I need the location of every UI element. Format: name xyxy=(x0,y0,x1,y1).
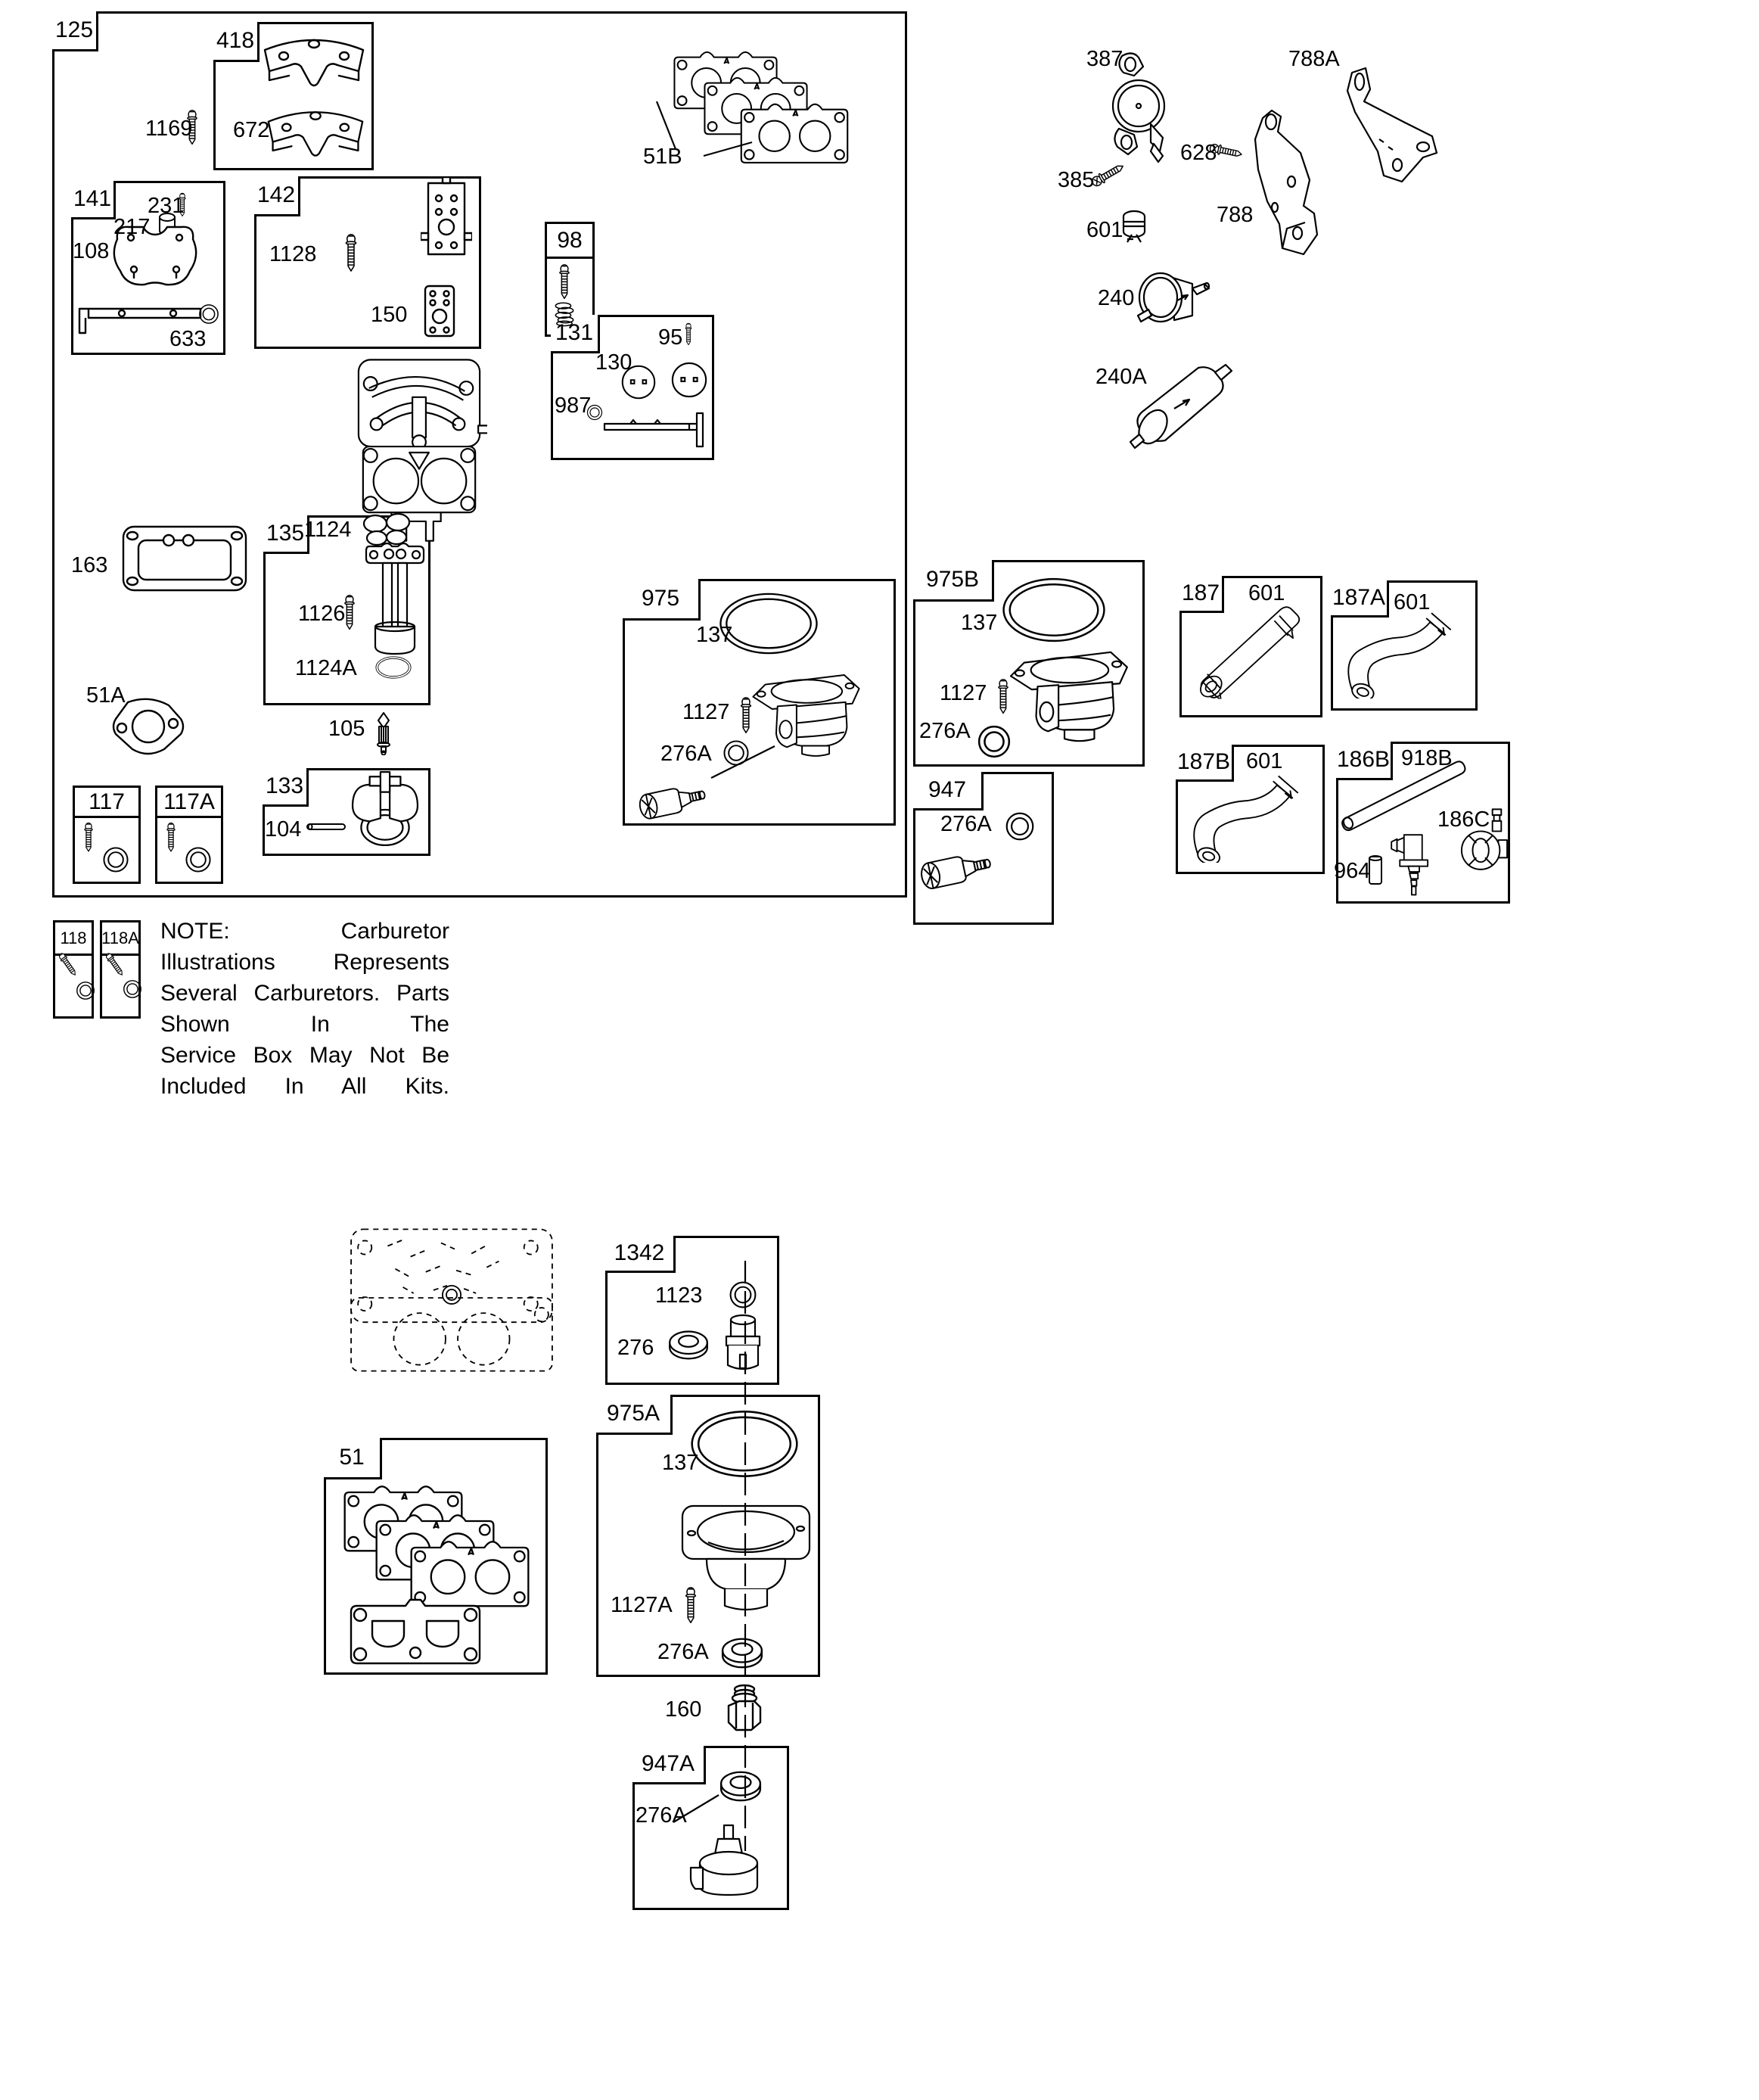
callout-1126: 1126 xyxy=(298,603,345,625)
kit-tag-125: 125 xyxy=(52,11,98,51)
callout-137: 137 xyxy=(662,1452,698,1474)
bracket-icon xyxy=(1330,67,1439,188)
callout-240A: 240A xyxy=(1095,366,1147,388)
callout-1124A: 1124A xyxy=(295,658,357,680)
plate-icon xyxy=(422,285,457,338)
callout-385: 385 xyxy=(1058,170,1094,191)
screw-icon xyxy=(57,950,79,979)
callout-51B: 51B xyxy=(643,146,682,168)
kit-tag-947: 947 xyxy=(913,772,984,810)
callout-1127: 1127 xyxy=(940,683,987,705)
nut-icon xyxy=(723,1683,766,1734)
seal-ring-icon xyxy=(76,981,95,1000)
callout-163: 163 xyxy=(71,555,107,577)
screw-icon xyxy=(161,822,181,854)
bracket-icon xyxy=(421,177,472,274)
callout-160: 160 xyxy=(665,1699,701,1721)
callout-672: 672 xyxy=(233,120,269,142)
callout-186C: 186C xyxy=(1437,809,1490,831)
callout-276A: 276A xyxy=(940,814,992,835)
screw-icon xyxy=(79,822,98,854)
callout-137: 137 xyxy=(961,612,997,634)
screw-icon xyxy=(994,678,1012,716)
callout-788: 788 xyxy=(1217,204,1253,226)
fuel-bowl-icon xyxy=(996,643,1135,749)
screw-icon xyxy=(555,263,573,301)
parts-diagram: 125 418 141 142 98 131 135 133 117 117A … xyxy=(0,0,1759,2100)
kit-tag-117A: 117A xyxy=(157,788,221,818)
callout-231: 231 xyxy=(148,195,184,217)
screw-icon xyxy=(682,1586,700,1626)
service-note-line1: NOTE: Carburetor Illustrations Represent… xyxy=(160,916,449,978)
seal-ring-icon xyxy=(977,719,1012,764)
fuel-filter-icon xyxy=(1133,260,1217,333)
callout-601: 601 xyxy=(1248,583,1285,605)
seal-ring-icon xyxy=(1005,804,1035,849)
kit-tag-975: 975 xyxy=(623,579,701,621)
kit-tag-142: 142 xyxy=(254,176,300,216)
washer-icon xyxy=(666,1327,711,1362)
callout-276: 276 xyxy=(617,1337,654,1359)
kit-tag-1342: 1342 xyxy=(605,1236,676,1273)
callout-276A: 276A xyxy=(919,720,971,742)
callout-276A: 276A xyxy=(657,1641,709,1663)
gasket-icon xyxy=(347,1595,484,1668)
heat-shield-icon xyxy=(260,100,371,166)
jet-cup-icon xyxy=(721,1312,765,1373)
spring-icon xyxy=(554,301,575,327)
callout-150: 150 xyxy=(371,304,407,326)
callout-276A: 276A xyxy=(660,743,712,765)
solenoid-icon xyxy=(679,1824,781,1899)
bowl-gasket-icon xyxy=(999,575,1108,645)
callout-788A: 788A xyxy=(1288,48,1340,70)
bracket-icon xyxy=(1236,109,1319,262)
kit-tag-141: 141 xyxy=(71,181,116,219)
callout-601: 601 xyxy=(1246,751,1282,773)
seal-ring-icon xyxy=(100,846,132,873)
callout-104: 104 xyxy=(265,819,301,841)
callout-628: 628 xyxy=(1180,142,1217,164)
fuel-hose-icon xyxy=(1179,763,1315,863)
needle-valve-icon xyxy=(373,711,394,755)
callout-1127A: 1127A xyxy=(611,1594,673,1616)
washer-icon xyxy=(719,1635,766,1671)
float-icon xyxy=(347,769,424,849)
service-note-line2: Several Carburetors. Parts Shown In The xyxy=(160,978,449,1040)
callout-137: 137 xyxy=(696,624,732,646)
callout-105: 105 xyxy=(328,718,365,740)
heat-shield-icon xyxy=(259,27,369,97)
callout-987: 987 xyxy=(555,395,591,417)
callout-95: 95 xyxy=(658,327,682,349)
screw-icon xyxy=(682,322,695,347)
seal-ring-icon xyxy=(723,733,750,773)
callout-1123: 1123 xyxy=(655,1285,702,1307)
service-note: NOTE: Carburetor Illustrations Represent… xyxy=(160,916,449,1102)
seal-ring-icon xyxy=(182,846,214,873)
kit-tag-117: 117 xyxy=(75,788,138,818)
washer-icon xyxy=(717,1768,764,1804)
seal-ring-icon xyxy=(198,298,219,330)
solenoid-icon xyxy=(918,845,1001,894)
kit-tag-98: 98 xyxy=(547,224,592,259)
fuel-bowl-icon xyxy=(742,661,863,769)
seal-ring-icon xyxy=(123,979,142,999)
callout-51A: 51A xyxy=(86,685,126,707)
kit-tag-975B: 975B xyxy=(913,560,994,602)
gasket-ring-icon xyxy=(374,655,413,680)
elbow-fitting-icon xyxy=(1388,828,1434,899)
callout-217: 217 xyxy=(113,216,150,238)
kit-tag-418: 418 xyxy=(213,22,259,62)
callout-964: 964 xyxy=(1334,860,1370,882)
screw-icon xyxy=(1089,156,1129,192)
choke-rod-icon xyxy=(602,412,711,450)
screw-icon xyxy=(342,233,360,274)
bowl-gasket-icon xyxy=(685,1408,803,1480)
callout-633: 633 xyxy=(169,328,206,350)
callout-130: 130 xyxy=(595,352,632,374)
callout-1127: 1127 xyxy=(682,702,729,723)
screw-icon xyxy=(737,696,755,736)
diaphragm-icon xyxy=(670,360,708,400)
callout-240: 240 xyxy=(1098,288,1134,310)
callout-1124: 1124 xyxy=(304,519,351,541)
fuel-hose-icon xyxy=(1332,600,1468,698)
screw-icon xyxy=(104,950,126,979)
kit-tag-133: 133 xyxy=(263,768,309,807)
kit-tag-947A: 947A xyxy=(632,1746,706,1784)
callout-918B: 918B xyxy=(1401,748,1453,770)
gasket-icon xyxy=(735,91,854,168)
hinge-pin-icon xyxy=(304,822,348,832)
kit-tag-135: 135 xyxy=(263,515,309,554)
gasket-icon xyxy=(120,521,249,593)
seal-ring-icon xyxy=(723,1280,763,1309)
solenoid-icon xyxy=(636,776,715,825)
callout-276A: 276A xyxy=(636,1805,687,1827)
kit-tag-975A: 975A xyxy=(596,1395,673,1435)
callout-108: 108 xyxy=(73,241,109,263)
service-note-line3: Service Box May Not Be Included In All K… xyxy=(160,1040,449,1102)
float-body-icon xyxy=(365,536,425,666)
callout-1169: 1169 xyxy=(145,118,192,140)
callout-601: 601 xyxy=(1394,592,1430,614)
callout-601: 601 xyxy=(1086,219,1123,241)
callout-387: 387 xyxy=(1086,48,1123,70)
callout-1128: 1128 xyxy=(269,244,316,266)
carburetor-ghost-icon xyxy=(342,1223,561,1377)
